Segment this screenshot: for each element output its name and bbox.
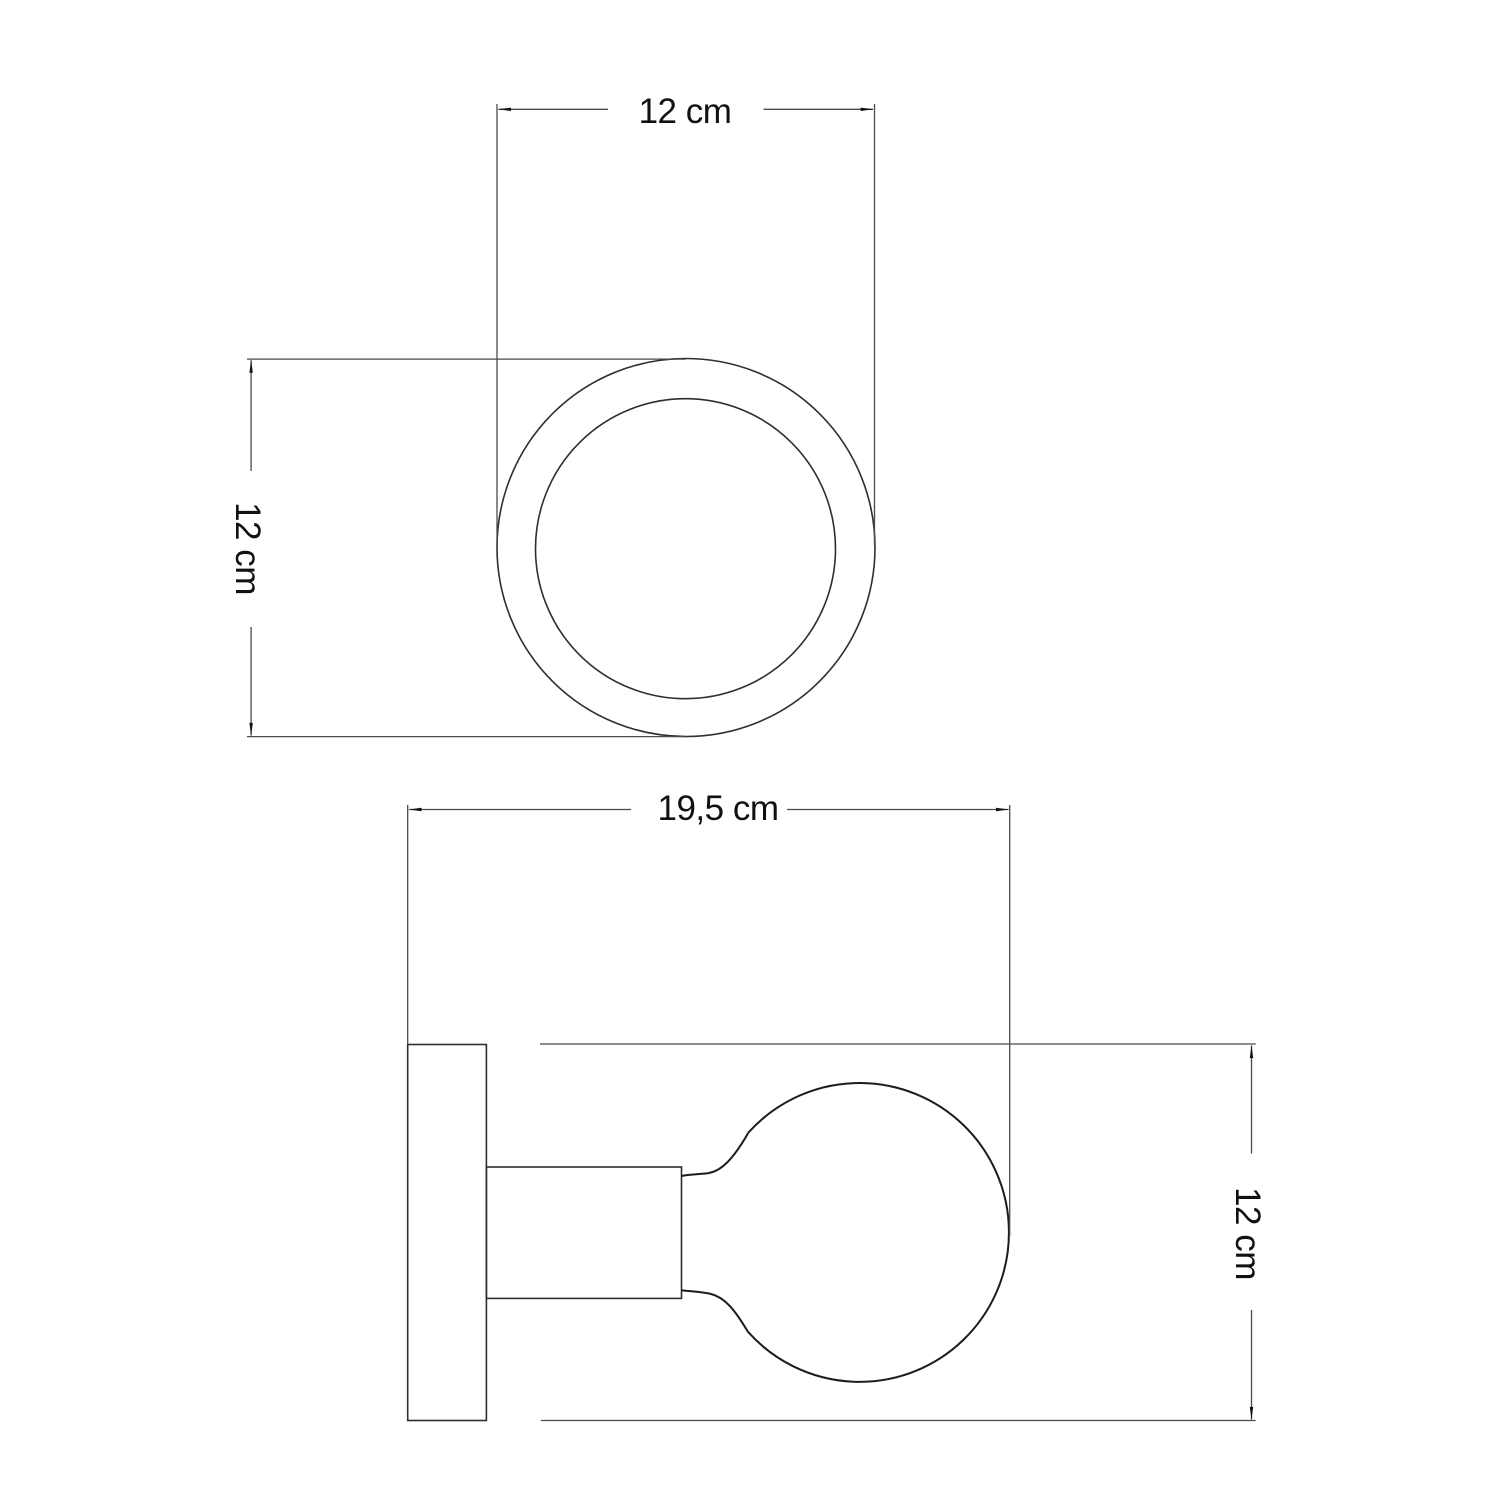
svg-text:12 cm: 12 cm <box>228 502 267 595</box>
svg-text:19,5 cm: 19,5 cm <box>658 789 779 828</box>
svg-text:12 cm: 12 cm <box>639 92 732 131</box>
svg-text:12 cm: 12 cm <box>1228 1187 1267 1280</box>
